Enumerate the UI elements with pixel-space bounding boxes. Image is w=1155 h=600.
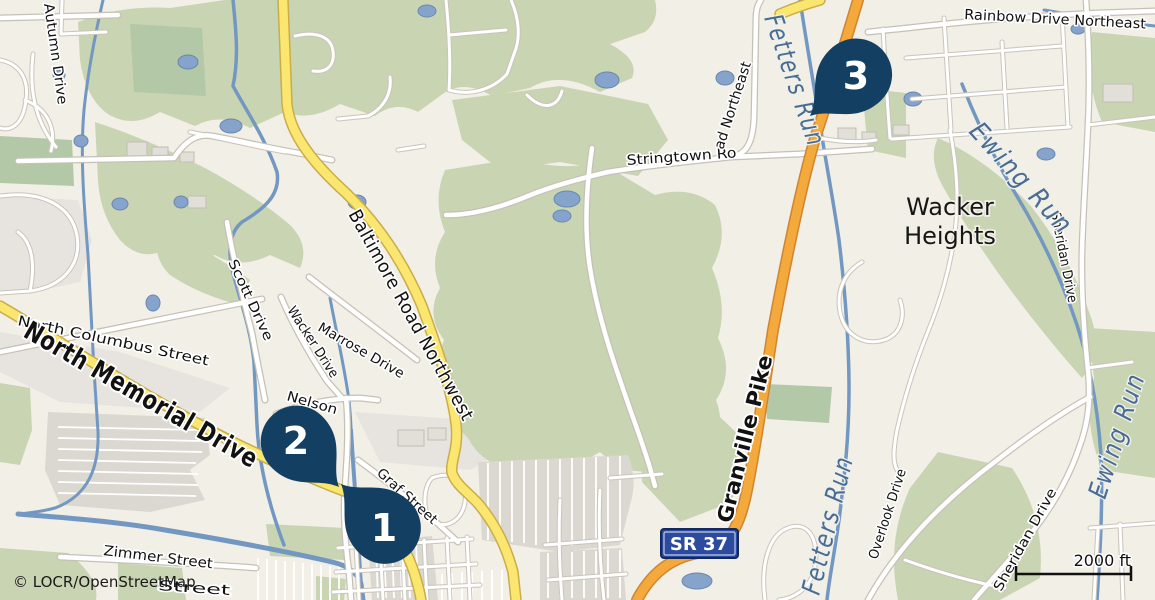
map-svg[interactable]: Autumn Drive North Columbus Street Scott… [0, 0, 1155, 600]
marker-3-number: 3 [843, 54, 869, 98]
marker-2-number: 2 [283, 419, 309, 463]
route-badge-text: SR 37 [670, 534, 728, 555]
place-label-wacker-heights: Wacker Heights [904, 193, 996, 250]
route-badge-sr37: SR 37 [661, 529, 738, 558]
map-attribution: © LOCR/OpenStreetMap [13, 573, 196, 591]
scale-label: 2000 ft [1074, 551, 1131, 570]
marker-1-number: 1 [371, 506, 397, 550]
map-canvas[interactable]: Autumn Drive North Columbus Street Scott… [0, 0, 1155, 600]
place-label-line2: Heights [904, 222, 996, 250]
place-label-line1: Wacker [906, 193, 994, 221]
